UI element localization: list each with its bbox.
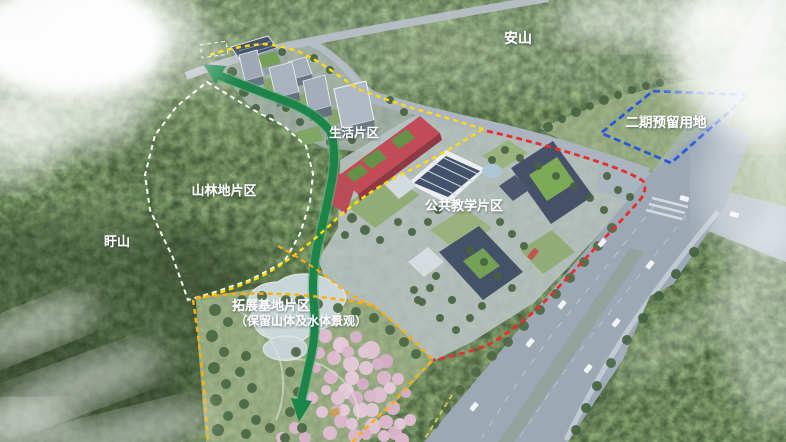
svg-text:安山: 安山 xyxy=(504,30,532,46)
svg-text:二期预留用地: 二期预留用地 xyxy=(626,114,707,130)
svg-text:公共教学片区: 公共教学片区 xyxy=(425,198,503,213)
svg-text:盱山: 盱山 xyxy=(104,234,130,249)
svg-text:拓展基地片区: 拓展基地片区 xyxy=(232,298,310,313)
svg-text:山林地片区: 山林地片区 xyxy=(191,183,256,198)
svg-text:生活片区: 生活片区 xyxy=(329,125,380,140)
svg-text:（保留山体及水体景观）: （保留山体及水体景观） xyxy=(235,313,367,328)
